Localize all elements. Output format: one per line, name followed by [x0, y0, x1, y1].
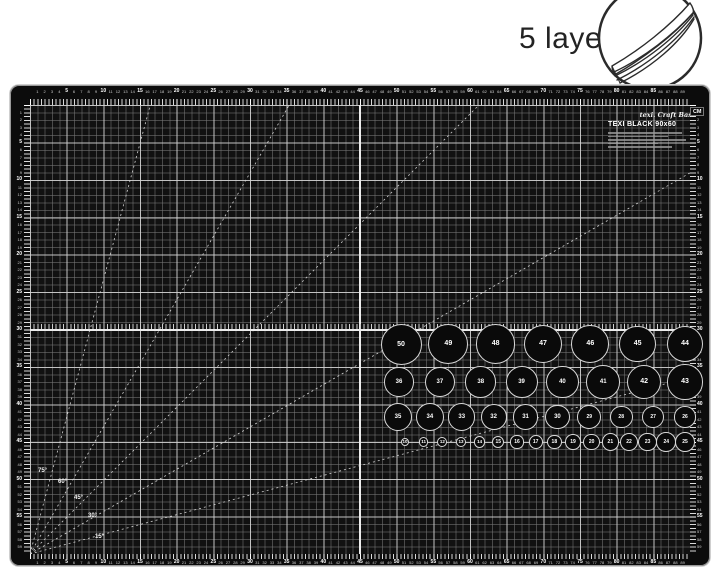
ruler-number: 7 — [697, 155, 708, 160]
angle-label: 75° — [38, 468, 47, 474]
ruler-number: 41 — [11, 409, 22, 414]
ruler-number: 47 — [697, 454, 708, 459]
ruler-number: 14 — [697, 207, 708, 212]
circle-template: 11 — [419, 437, 428, 446]
ruler-number: 49 — [697, 469, 708, 474]
ruler-number: 3 — [697, 125, 708, 130]
circle-template: 28 — [610, 406, 633, 429]
ruler-number: 19 — [11, 245, 22, 250]
ruler-number: 16 — [11, 222, 22, 227]
ruler-number: 30 — [697, 327, 708, 332]
circle-template: 44 — [667, 326, 703, 362]
circle-template: 39 — [506, 366, 538, 398]
ruler-number: 35 — [11, 364, 22, 369]
ruler-number: 4 — [697, 132, 708, 137]
circle-template: 38 — [465, 366, 496, 397]
fine-print-line — [608, 146, 672, 148]
ruler-number: 52 — [697, 492, 708, 497]
ruler-number: 54 — [697, 507, 708, 512]
ruler-number: 21 — [11, 260, 22, 265]
ruler-number: 45 — [697, 439, 708, 444]
ruler-number: 52 — [11, 492, 22, 497]
measuring-grid: 75°60°45°30°15°5049484746454436373839404… — [30, 105, 690, 554]
circle-template: 16 — [510, 435, 523, 448]
ruler-number: 45 — [11, 439, 22, 444]
ruler-number: 21 — [697, 260, 708, 265]
circle-template: 22 — [620, 433, 638, 451]
ruler-number: 89 — [678, 560, 688, 565]
ruler-number: 59 — [697, 544, 708, 549]
ruler-number: 12 — [11, 192, 22, 197]
circle-template: 21 — [602, 433, 619, 450]
circle-template: 43 — [667, 364, 702, 399]
circle-template: 34 — [416, 403, 444, 431]
stacked-sheets-icon — [590, 0, 710, 90]
ruler-number: 15 — [697, 215, 708, 220]
ruler-number: 26 — [11, 297, 22, 302]
circle-template: 46 — [571, 325, 609, 363]
ruler-number: 31 — [11, 334, 22, 339]
ruler-number: 28 — [697, 312, 708, 317]
ruler-number: 12 — [697, 192, 708, 197]
ruler-number: 47 — [11, 454, 22, 459]
ruler-number: 57 — [697, 529, 708, 534]
ruler-number: 13 — [11, 200, 22, 205]
fine-print-lines — [608, 132, 696, 148]
ruler-number: 48 — [11, 462, 22, 467]
ruler-number: 20 — [697, 252, 708, 257]
ruler-number: 22 — [11, 267, 22, 272]
circle-template: 31 — [513, 404, 538, 429]
ruler-number: 46 — [697, 447, 708, 452]
ruler-number: 44 — [697, 432, 708, 437]
ruler-number: 18 — [11, 237, 22, 242]
ruler-numbers-right: 1234567891011121314151617181920212223242… — [697, 105, 709, 554]
circle-template: 40 — [546, 366, 579, 399]
ruler-number: 59 — [11, 544, 22, 549]
circle-template: 45 — [619, 326, 656, 363]
ruler-number: 28 — [11, 312, 22, 317]
ruler-number: 32 — [11, 342, 22, 347]
ruler-number: 55 — [11, 514, 22, 519]
unit-label: CM — [690, 107, 704, 116]
ruler-number: 25 — [11, 290, 22, 295]
circle-template: 48 — [476, 324, 515, 363]
ruler-number: 4 — [11, 132, 22, 137]
ruler-number: 38 — [11, 387, 22, 392]
ruler-number: 8 — [11, 162, 22, 167]
circle-template: 36 — [384, 367, 414, 397]
fine-print-line — [608, 139, 686, 141]
ruler-number: 40 — [697, 402, 708, 407]
ruler-number: 34 — [697, 357, 708, 362]
ruler-number: 46 — [11, 447, 22, 452]
brand-model-label: TEXI BLACK 90x60 — [608, 121, 696, 128]
ruler-number: 24 — [11, 282, 22, 287]
ruler-number: 8 — [697, 162, 708, 167]
circle-template: 37 — [425, 367, 455, 397]
ruler-number: 19 — [697, 245, 708, 250]
angle-label: 60° — [58, 479, 67, 485]
ruler-number: 25 — [697, 290, 708, 295]
angle-label: 45° — [74, 495, 83, 501]
ruler-number: 53 — [11, 499, 22, 504]
ruler-number: 57 — [11, 529, 22, 534]
ruler-number: 37 — [11, 379, 22, 384]
ruler-number: 35 — [697, 364, 708, 369]
ruler-number: 11 — [697, 185, 708, 190]
ruler-number: 33 — [11, 349, 22, 354]
ruler-number: 16 — [697, 222, 708, 227]
ruler-number: 43 — [11, 424, 22, 429]
ruler-number: 5 — [697, 140, 708, 145]
ruler-number: 58 — [11, 537, 22, 542]
ruler-number: 17 — [11, 230, 22, 235]
ruler-number: 7 — [11, 155, 22, 160]
ruler-number: 56 — [697, 522, 708, 527]
ruler-number: 5 — [11, 140, 22, 145]
ruler-number: 9 — [11, 170, 22, 175]
ruler-number: 49 — [11, 469, 22, 474]
ruler-number: 27 — [697, 305, 708, 310]
ruler-number: 53 — [697, 499, 708, 504]
circle-template: 30 — [545, 405, 570, 430]
ruler-number: 39 — [697, 394, 708, 399]
ruler-number: 18 — [697, 237, 708, 242]
ruler-number: 36 — [11, 372, 22, 377]
circle-template: 14 — [474, 436, 485, 447]
ruler-number: 41 — [697, 409, 708, 414]
ruler-number: 58 — [697, 537, 708, 542]
circle-template: 17 — [529, 435, 543, 449]
circle-template: 27 — [642, 406, 664, 428]
ruler-number: 50 — [697, 477, 708, 482]
ruler-number: 2 — [11, 117, 22, 122]
fine-print-line — [608, 136, 668, 138]
circle-template: 29 — [577, 405, 601, 429]
ruler-numbers-bottom: 1234567891011121314151617181920212223242… — [30, 559, 690, 567]
ruler-number: 11 — [11, 185, 22, 190]
ruler-number: 54 — [11, 507, 22, 512]
five-layers-badge: 5 layers — [498, 0, 714, 92]
fine-print-line — [608, 132, 682, 134]
ruler-number: 23 — [11, 275, 22, 280]
ruler-number: 20 — [11, 252, 22, 257]
brand-script-logo: texi. Craft Base — [608, 111, 696, 119]
ruler-number: 23 — [697, 275, 708, 280]
ruler-number: 26 — [697, 297, 708, 302]
ruler-number: 24 — [697, 282, 708, 287]
ruler-number: 89 — [678, 89, 688, 94]
angle-label: 30° — [88, 513, 97, 519]
ruler-number: 48 — [697, 462, 708, 467]
circle-template: 26 — [674, 406, 695, 427]
ruler-number: 6 — [697, 147, 708, 152]
ruler-number: 29 — [697, 320, 708, 325]
ruler-number: 39 — [11, 394, 22, 399]
circle-template: 33 — [448, 403, 475, 430]
ruler-number: 50 — [11, 477, 22, 482]
ruler-numbers-left: 1234567891011121314151617181920212223242… — [11, 105, 23, 554]
ruler-number: 17 — [697, 230, 708, 235]
ruler-number: 43 — [697, 424, 708, 429]
ruler-numbers-top: 1234567891011121314151617181920212223242… — [30, 88, 690, 97]
circle-template: 20 — [583, 434, 599, 450]
ruler-number: 10 — [697, 177, 708, 182]
ruler-number: 56 — [11, 522, 22, 527]
ruler-number: 13 — [697, 200, 708, 205]
ruler-number: 42 — [11, 417, 22, 422]
circle-template: 19 — [565, 434, 581, 450]
ruler-number: 10 — [11, 177, 22, 182]
ruler-number: 27 — [11, 305, 22, 310]
ruler-number: 51 — [11, 484, 22, 489]
cutting-mat: 1234567891011121314151617181920212223242… — [10, 85, 710, 566]
ruler-number: 30 — [11, 327, 22, 332]
circle-template: 18 — [547, 435, 562, 450]
ruler-number: 14 — [11, 207, 22, 212]
ruler-number: 6 — [11, 147, 22, 152]
circle-template: 24 — [656, 432, 676, 452]
ruler-number: 22 — [697, 267, 708, 272]
ruler-number: 51 — [697, 484, 708, 489]
ruler-number: 40 — [11, 402, 22, 407]
ruler-number: 1 — [11, 110, 22, 115]
ruler-number: 2 — [697, 117, 708, 122]
circle-template: 50 — [381, 324, 422, 365]
ruler-number: 34 — [11, 357, 22, 362]
circle-template: 41 — [586, 365, 620, 399]
ruler-number: 15 — [11, 215, 22, 220]
ruler-number: 3 — [11, 125, 22, 130]
ruler-number: 9 — [697, 170, 708, 175]
ruler-number: 29 — [11, 320, 22, 325]
fine-print-line — [608, 143, 658, 145]
ruler-number: 42 — [697, 417, 708, 422]
circle-template: 32 — [481, 404, 507, 430]
angle-label: 15° — [95, 534, 104, 540]
ruler-number: 55 — [697, 514, 708, 519]
ruler-number: 44 — [11, 432, 22, 437]
brand-block: texi. Craft Base TEXI BLACK 90x60 — [608, 111, 696, 150]
